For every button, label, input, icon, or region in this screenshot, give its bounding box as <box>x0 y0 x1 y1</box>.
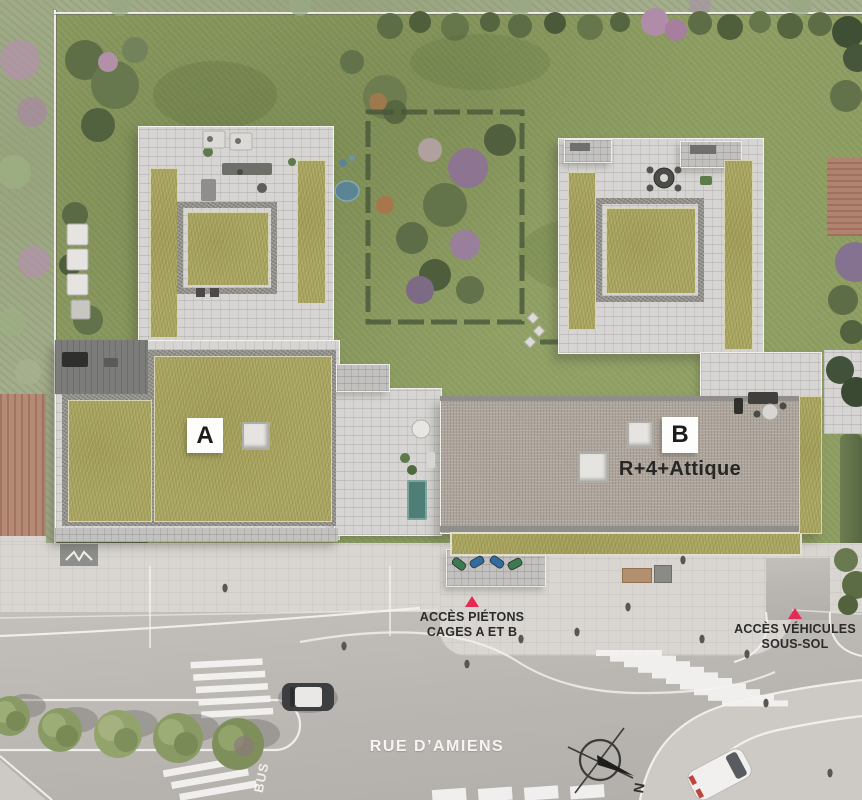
site-plan: N A B R+4+Attique ACCÈS PIÉTONS CAGES A … <box>0 0 862 800</box>
center-pergola-pad <box>336 364 390 392</box>
vehicle-access-marker-icon <box>788 608 802 619</box>
vehicle-access-line1: ACCÈS VÉHICULES <box>715 622 862 637</box>
building-a-letter: A <box>196 422 213 450</box>
building-b-green-strip-west <box>568 172 596 330</box>
building-b-terrace-pad-nw <box>564 139 612 163</box>
garden-trees-right <box>826 80 862 407</box>
building-a-green-strip-east <box>297 160 326 304</box>
building-b-letter: B <box>671 421 688 449</box>
building-a-label: A <box>187 418 223 453</box>
vehicle-access-annotation: ACCÈS VÉHICULES SOUS-SOL <box>715 608 862 652</box>
central-garden-trees <box>376 124 516 304</box>
street-bench <box>622 568 652 583</box>
building-a-green-strip-west <box>150 168 178 338</box>
building-b-green-strip-roof-east <box>799 396 822 534</box>
building-b-green-band-front <box>450 532 802 556</box>
building-b-courtyard-green <box>606 208 696 294</box>
building-b-skylight-2 <box>627 421 654 448</box>
vehicle-access-line2: SOUS-SOL <box>715 637 862 652</box>
building-b-green-strip-east <box>724 160 753 350</box>
pedestrian-access-line1: ACCÈS PIÉTONS <box>397 610 547 625</box>
pedestrian-access-line2: CAGES A ET B <box>397 625 547 640</box>
street-name-label: RUE D’AMIENS <box>362 738 512 756</box>
pedestrian-gate <box>60 544 98 566</box>
rooftop-pool <box>407 480 427 520</box>
building-a-courtyard-green <box>187 212 269 286</box>
building-a-green-roof-2 <box>68 400 152 522</box>
garden-pond <box>335 155 359 201</box>
building-b-label: B <box>662 417 698 453</box>
street-planter <box>654 565 672 583</box>
building-a-front-walk <box>55 528 338 542</box>
building-a-skylight <box>242 422 270 450</box>
building-b-height-label: R+4+Attique <box>595 458 765 481</box>
pedestrian-access-marker-icon <box>465 596 479 607</box>
terrace-table <box>104 358 118 367</box>
terrace-grill <box>62 352 88 367</box>
building-a-dark-terrace <box>55 340 148 394</box>
pedestrian-access-annotation: ACCÈS PIÉTONS CAGES A ET B <box>397 596 547 640</box>
building-b-roof-edge-top <box>440 396 820 401</box>
building-b-east-terrace <box>700 352 822 400</box>
